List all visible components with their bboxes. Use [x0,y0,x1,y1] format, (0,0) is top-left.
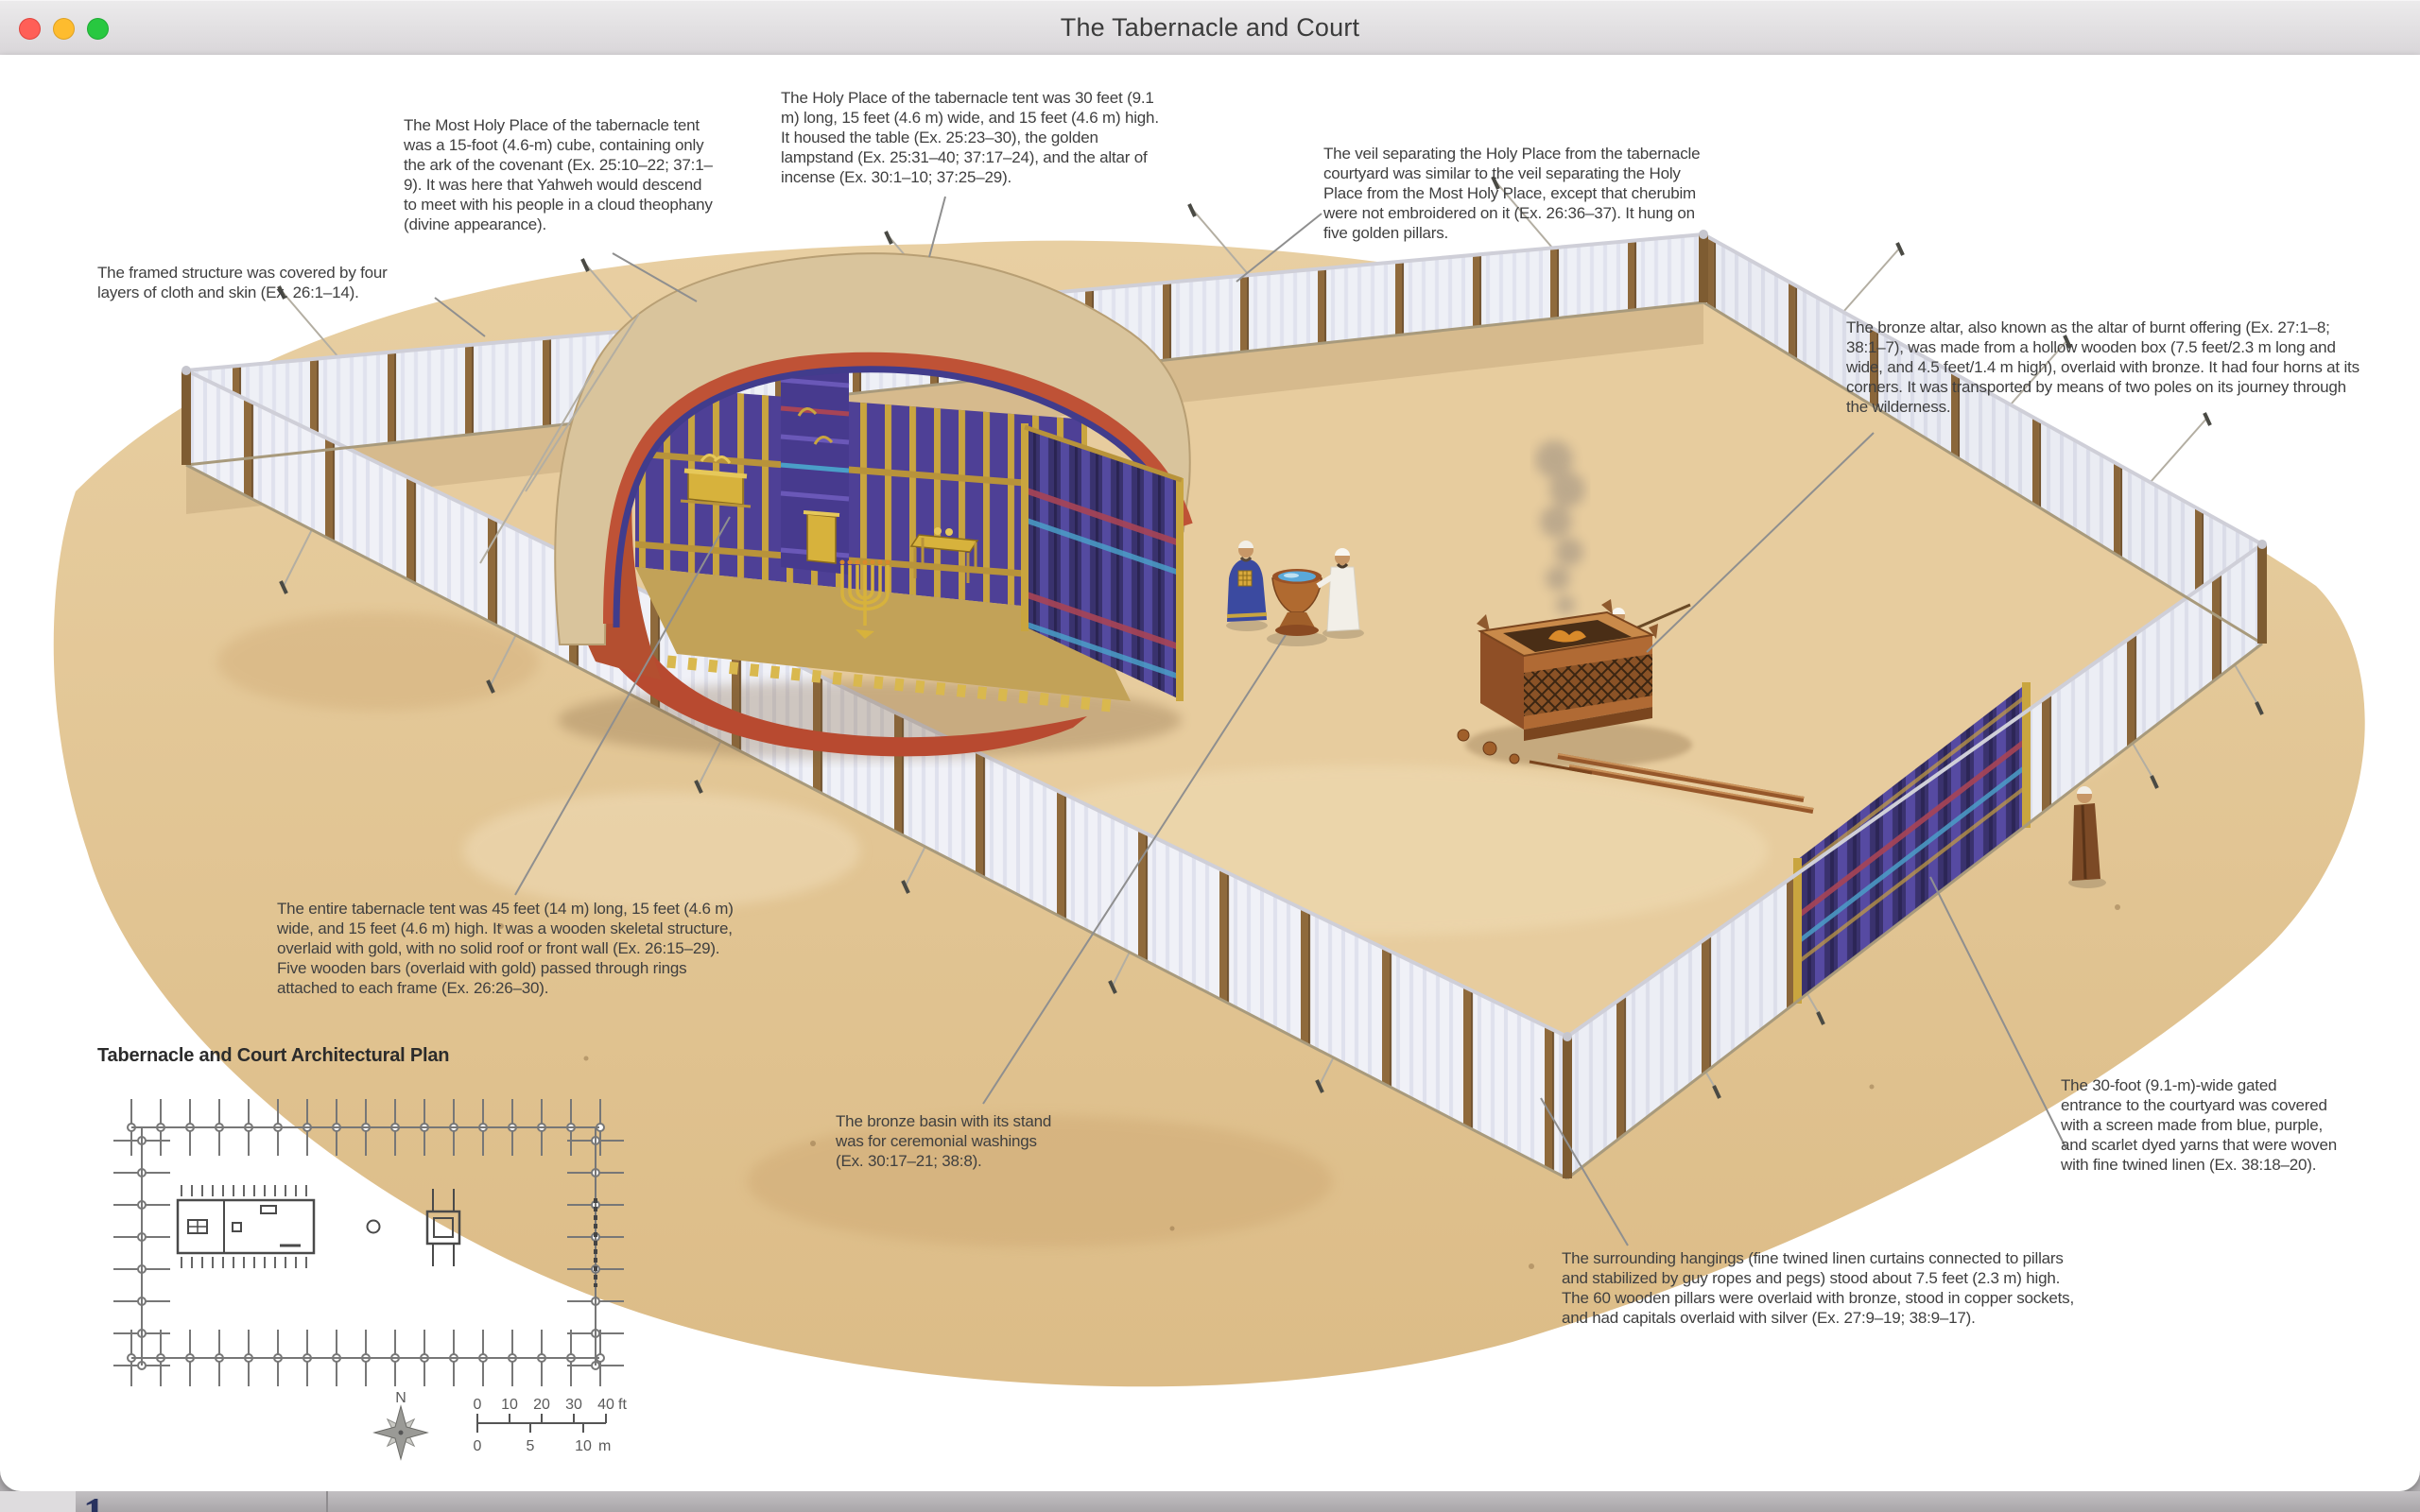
annotation-veil: The veil separating the Holy Place from … [1323,144,1703,243]
annotation-surrounding-hangings: The surrounding hangings (fine twined li… [1562,1248,2074,1328]
annotation-bronze-basin: The bronze basin with its stand was for … [836,1111,1061,1171]
figure-card: N 0 10 20 30 40 ft 0 5 10 m The Most Hol… [0,55,2420,1491]
scale-ft-40: 40 [597,1397,614,1413]
scale-bar: 0 10 20 30 40 ft 0 5 10 m [474,1397,628,1454]
scale-ft-30: 30 [565,1397,582,1413]
scale-ft-20: 20 [533,1397,550,1413]
annotation-holy-place: The Holy Place of the tabernacle tent wa… [781,88,1167,187]
plan-basin [368,1221,380,1233]
annotation-entire-tent: The entire tabernacle tent was 45 feet (… [277,899,742,998]
annotation-framed-structure: The framed structure was covered by four… [97,263,392,302]
annotation-gated-entrance: The 30-foot (9.1-m)-wide gated entrance … [2061,1075,2337,1175]
plan-tabernacle [178,1185,314,1268]
scale-m-unit: m [598,1438,611,1454]
chapter-number: 1 [83,1491,105,1512]
scale-ft-10: 10 [501,1397,518,1413]
annotation-bronze-altar: The bronze altar, also known as the alta… [1846,318,2364,417]
scale-ft-0: 0 [474,1397,482,1413]
scale-ft-unit: ft [618,1397,627,1413]
scale-m-0: 0 [474,1438,482,1454]
incense-altar [804,512,839,563]
plan-heading: Tabernacle and Court Architectural Plan [97,1045,449,1067]
app-window: { "window": { "title": "The Tabernacle a… [0,0,2420,1512]
scale-m-5: 5 [527,1438,535,1454]
window-titlebar: The Tabernacle and Court [0,0,2420,56]
compass-rose: N [374,1390,428,1459]
page-margin-edge [0,1491,76,1512]
compass-north-label: N [395,1390,406,1406]
annotation-most-holy-place: The Most Holy Place of the tabernacle te… [404,115,717,234]
column-divider [326,1491,328,1512]
book-page-band: 1 17–19)—lesser metals than the pure gol… [0,1491,2420,1512]
window-title: The Tabernacle and Court [0,13,2420,43]
scale-m-10: 10 [575,1438,592,1454]
architectural-plan: N 0 10 20 30 40 ft 0 5 10 m [113,1099,627,1459]
